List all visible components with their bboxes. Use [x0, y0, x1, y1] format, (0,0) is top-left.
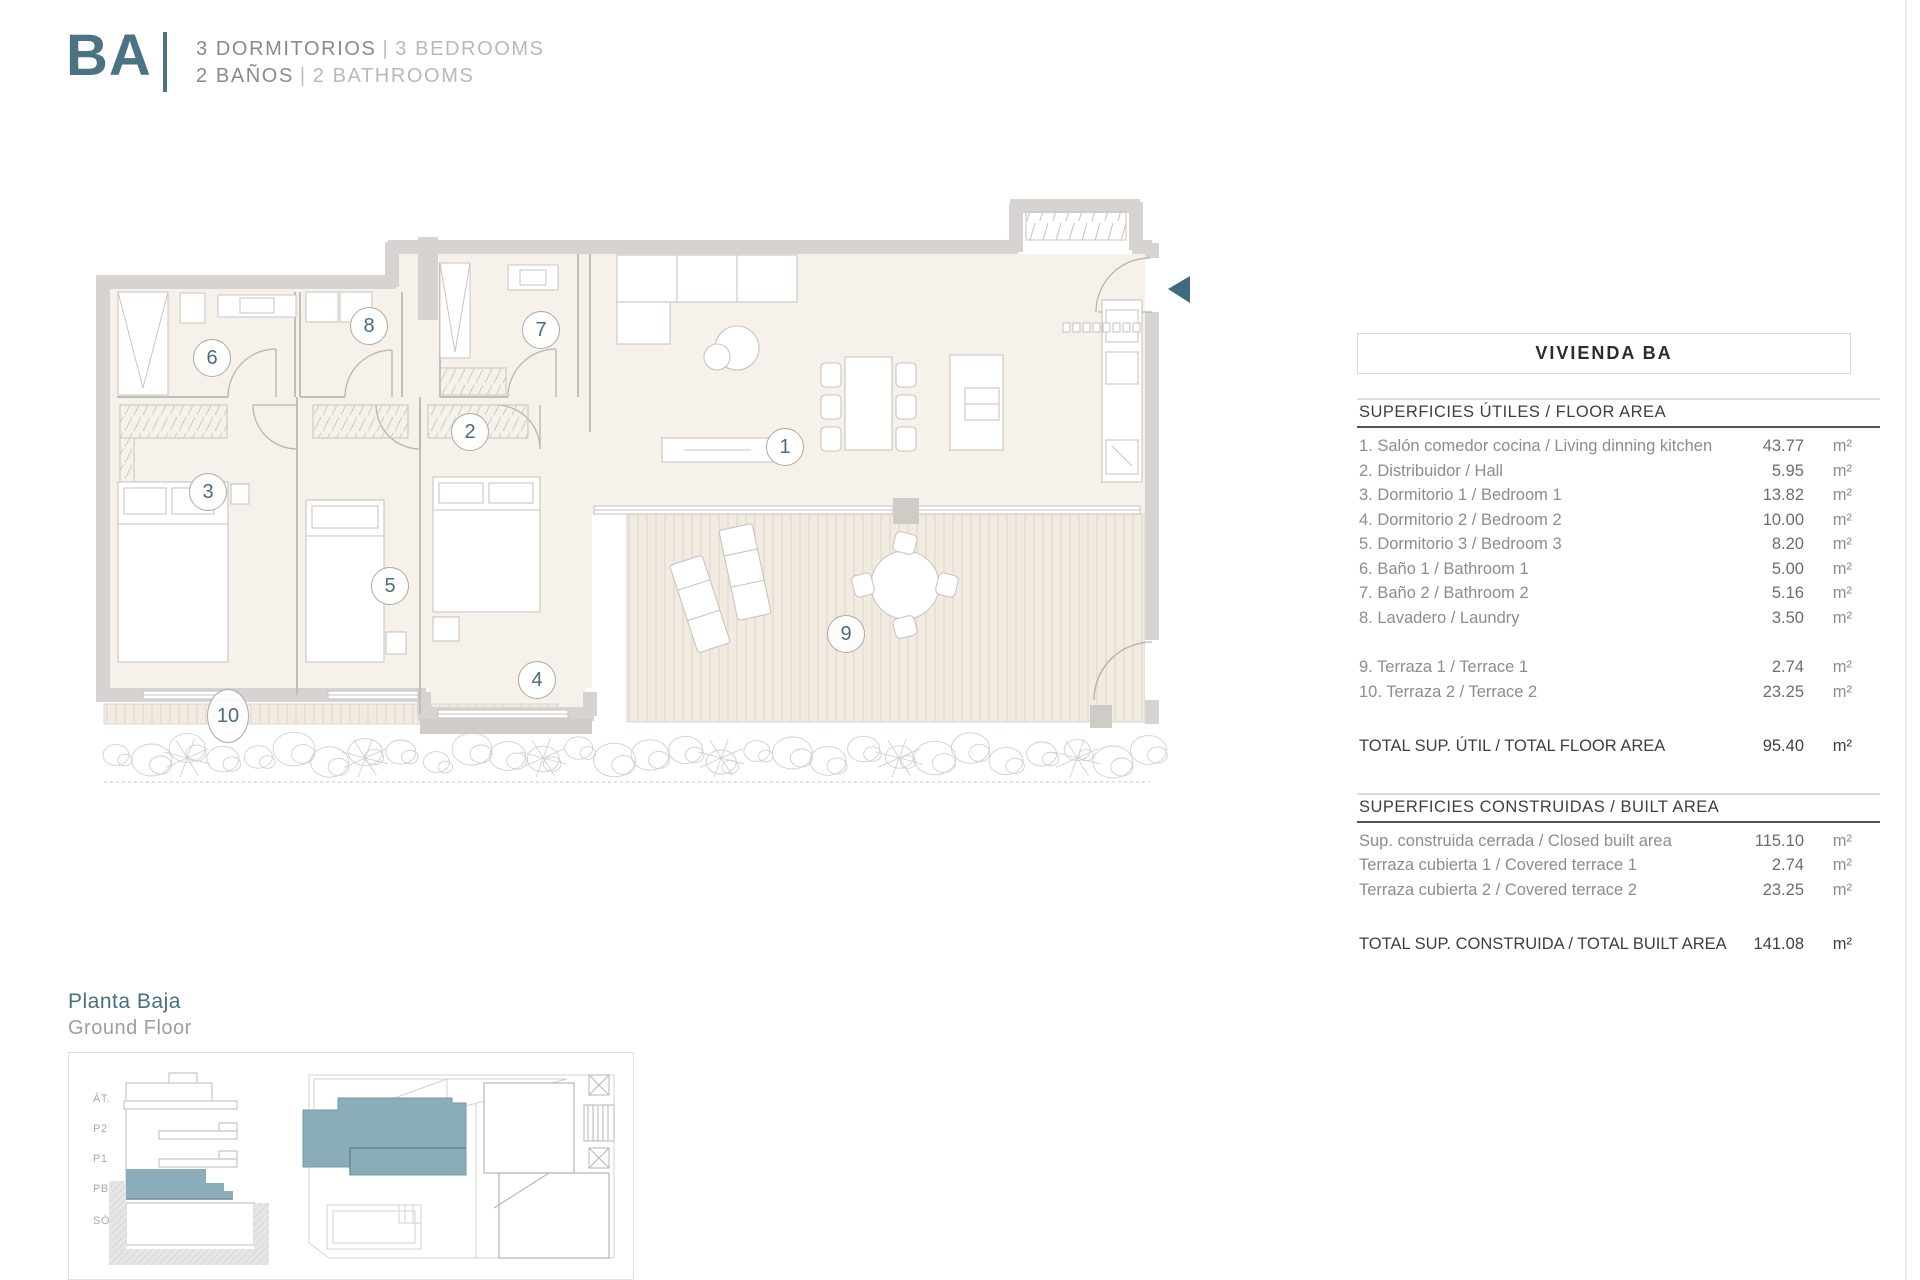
area-row: 6. Baño 1 / Bathroom 15.00m²	[1357, 557, 1880, 582]
area-row-lbl: 3. Dormitorio 1 / Bedroom 1	[1357, 483, 1734, 508]
area-section: SUPERFICIES ÚTILES / FLOOR AREA1. Salón …	[1357, 398, 1880, 759]
section-heading: SUPERFICIES ÚTILES / FLOOR AREA	[1357, 398, 1880, 428]
location-diagrams	[69, 1053, 633, 1279]
room-marker-9: 9	[827, 615, 865, 653]
area-row-val: 5.95	[1734, 459, 1804, 484]
area-row-val: 2.74	[1734, 655, 1804, 680]
spec-line-bedrooms: 3 DORMITORIOS|3 BEDROOMS	[196, 36, 545, 63]
area-row-unit: m²	[1804, 853, 1852, 878]
unit-code: BA	[66, 22, 152, 89]
area-row-val: 10.00	[1734, 508, 1804, 533]
area-panel: VIVIENDA BA SUPERFICIES ÚTILES / FLOOR A…	[1357, 333, 1880, 957]
area-row-unit: m²	[1804, 459, 1852, 484]
mullion-post	[893, 498, 919, 524]
section-ground-left	[109, 1181, 126, 1203]
area-section: SUPERFICIES CONSTRUIDAS / BUILT AREASup.…	[1357, 793, 1880, 957]
legend-title-es: Planta Baja	[68, 990, 192, 1014]
area-row-lbl: 5. Dormitorio 3 / Bedroom 3	[1357, 532, 1734, 557]
room-marker-7: 7	[522, 311, 560, 349]
area-row: 3. Dormitorio 1 / Bedroom 113.82m²	[1357, 483, 1880, 508]
section-highlight	[126, 1169, 233, 1199]
area-row-val: 13.82	[1734, 483, 1804, 508]
area-row-lbl: 4. Dormitorio 2 / Bedroom 2	[1357, 508, 1734, 533]
legend-title: Planta Baja Ground Floor	[68, 990, 192, 1040]
area-row-unit: m²	[1804, 829, 1852, 854]
area-row-lbl: 9. Terraza 1 / Terrace 1	[1357, 655, 1734, 680]
area-row: 1. Salón comedor cocina / Living dinning…	[1357, 434, 1880, 459]
room-marker-10: 10	[207, 689, 249, 743]
area-row-group: 1. Salón comedor cocina / Living dinning…	[1357, 434, 1880, 630]
spec-line-bathrooms: 2 BAÑOS|2 BATHROOMS	[196, 63, 545, 90]
area-row: 5. Dormitorio 3 / Bedroom 38.20m²	[1357, 532, 1880, 557]
area-row-unit: m²	[1804, 878, 1852, 903]
area-total-row: TOTAL SUP. ÚTIL / TOTAL FLOOR AREA95.40m…	[1357, 734, 1880, 759]
room-marker-8: 8	[350, 307, 388, 345]
area-row-lbl: 1. Salón comedor cocina / Living dinning…	[1357, 434, 1734, 459]
area-row-unit: m²	[1804, 655, 1852, 680]
area-row-val: 23.25	[1734, 680, 1804, 705]
area-row: Sup. construida cerrada / Closed built a…	[1357, 829, 1880, 854]
area-row-lbl: 10. Terraza 2 / Terrace 2	[1357, 680, 1734, 705]
section-ground	[109, 1203, 269, 1265]
area-row: 4. Dormitorio 2 / Bedroom 210.00m²	[1357, 508, 1880, 533]
panel-title-box: VIVIENDA BA	[1357, 333, 1851, 374]
area-row-lbl: Terraza cubierta 1 / Covered terrace 1	[1357, 853, 1734, 878]
section-diagram	[124, 1073, 254, 1245]
area-row-lbl: 6. Baño 1 / Bathroom 1	[1357, 557, 1734, 582]
area-total-row-lbl: TOTAL SUP. ÚTIL / TOTAL FLOOR AREA	[1357, 734, 1734, 759]
area-row-lbl: 7. Baño 2 / Bathroom 2	[1357, 581, 1734, 606]
area-row-val: 2.74	[1734, 853, 1804, 878]
balcony	[1026, 212, 1126, 240]
area-row-unit: m²	[1804, 606, 1852, 631]
area-row-group: 9. Terraza 1 / Terrace 12.74m²10. Terraz…	[1357, 655, 1880, 704]
legend-title-en: Ground Floor	[68, 1017, 192, 1040]
wall-jog	[418, 237, 438, 320]
planter-block	[420, 719, 592, 734]
area-row: 10. Terraza 2 / Terrace 223.25m²	[1357, 680, 1880, 705]
mullion-post-2	[1090, 705, 1112, 728]
area-row-lbl: Terraza cubierta 2 / Covered terrace 2	[1357, 878, 1734, 903]
area-row: Terraza cubierta 1 / Covered terrace 12.…	[1357, 853, 1880, 878]
area-row-unit: m²	[1804, 508, 1852, 533]
area-row-unit: m²	[1804, 581, 1852, 606]
area-row-group: Sup. construida cerrada / Closed built a…	[1357, 829, 1880, 903]
room-marker-6: 6	[193, 339, 231, 377]
planting-bed	[103, 732, 1167, 782]
area-total-row-unit: m²	[1804, 734, 1852, 759]
floorplan-drawing	[88, 192, 1198, 792]
area-row-val: 3.50	[1734, 606, 1804, 631]
unit-specs: 3 DORMITORIOS|3 BEDROOMS 2 BAÑOS|2 BATHR…	[196, 36, 545, 90]
area-total-row-val: 141.08	[1734, 932, 1804, 957]
area-total-row-val: 95.40	[1734, 734, 1804, 759]
area-row-val: 5.00	[1734, 557, 1804, 582]
area-row-val: 8.20	[1734, 532, 1804, 557]
siteplan-cores	[584, 1075, 614, 1168]
area-total-row-lbl: TOTAL SUP. CONSTRUIDA / TOTAL BUILT AREA	[1357, 932, 1734, 957]
room-marker-5: 5	[371, 567, 409, 605]
area-row-unit: m²	[1804, 680, 1852, 705]
siteplan-highlight	[303, 1098, 466, 1175]
panel-title: VIVIENDA BA	[1535, 343, 1672, 364]
area-row: Terraza cubierta 2 / Covered terrace 223…	[1357, 878, 1880, 903]
area-row: 2. Distribuidor / Hall5.95m²	[1357, 459, 1880, 484]
area-row-unit: m²	[1804, 434, 1852, 459]
room-marker-2: 2	[451, 413, 489, 451]
location-diagram-box: ÁT.P2P1PBSÓT.	[68, 1052, 634, 1280]
area-total-row: TOTAL SUP. CONSTRUIDA / TOTAL BUILT AREA…	[1357, 932, 1880, 957]
area-row-unit: m²	[1804, 532, 1852, 557]
area-row-val: 43.77	[1734, 434, 1804, 459]
area-row-val: 23.25	[1734, 878, 1804, 903]
area-row-val: 115.10	[1734, 829, 1804, 854]
room-marker-1: 1	[766, 428, 804, 466]
area-table-sections: SUPERFICIES ÚTILES / FLOOR AREA1. Salón …	[1357, 398, 1880, 957]
area-row: 7. Baño 2 / Bathroom 25.16m²	[1357, 581, 1880, 606]
area-row-lbl: 2. Distribuidor / Hall	[1357, 459, 1734, 484]
area-row-unit: m²	[1804, 557, 1852, 582]
page-edge-line	[1905, 0, 1907, 1280]
area-row: 9. Terraza 1 / Terrace 12.74m²	[1357, 655, 1880, 680]
header-divider	[163, 32, 167, 92]
section-heading: SUPERFICIES CONSTRUIDAS / BUILT AREA	[1357, 793, 1880, 823]
area-row: 8. Lavadero / Laundry3.50m²	[1357, 606, 1880, 631]
room-marker-3: 3	[189, 473, 227, 511]
terrace-door-gap	[1145, 640, 1159, 700]
area-total-row-unit: m²	[1804, 932, 1852, 957]
area-row-val: 5.16	[1734, 581, 1804, 606]
area-row-lbl: 8. Lavadero / Laundry	[1357, 606, 1734, 631]
area-row-lbl: Sup. construida cerrada / Closed built a…	[1357, 829, 1734, 854]
area-row-unit: m²	[1804, 483, 1852, 508]
room-marker-4: 4	[518, 661, 556, 699]
entry-arrow-icon	[1168, 276, 1190, 303]
